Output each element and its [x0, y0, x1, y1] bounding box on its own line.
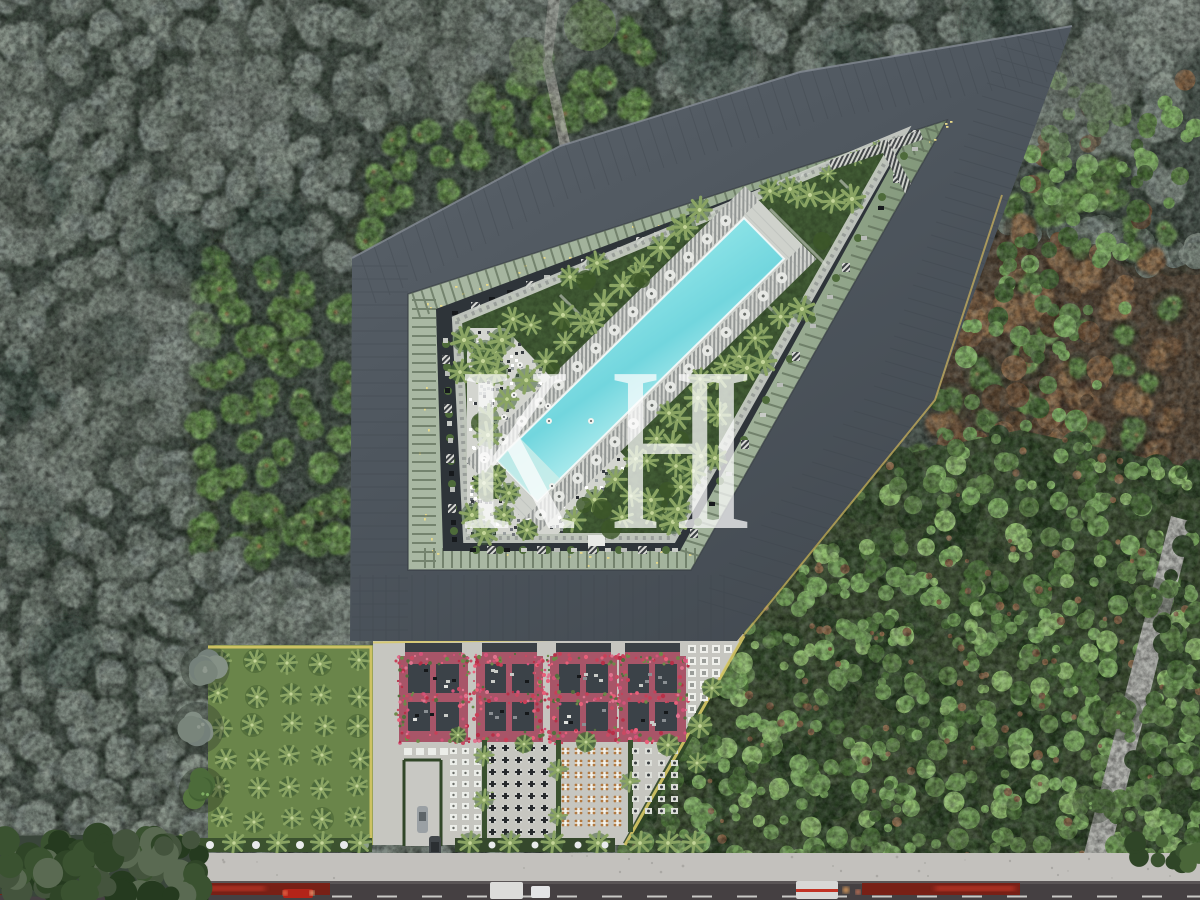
svg-text:K: K	[460, 320, 575, 580]
svg-text:I: I	[700, 320, 753, 580]
